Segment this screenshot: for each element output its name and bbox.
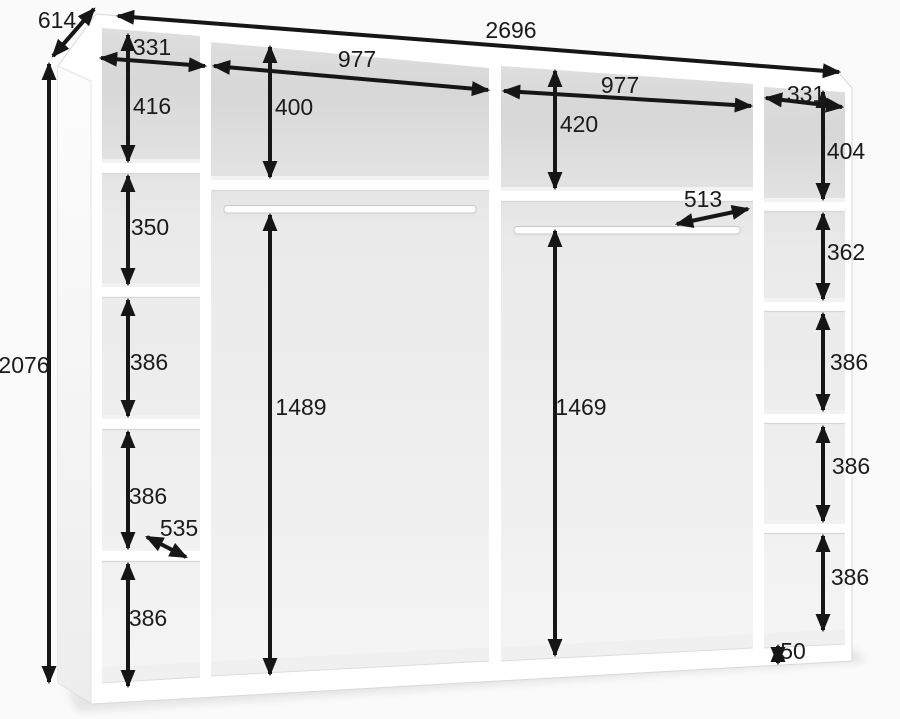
shelf: [764, 524, 845, 533]
dim-left-c1-label: 416: [133, 93, 171, 119]
rail-shadow: [514, 235, 740, 238]
shelf-top-surface: [102, 159, 200, 163]
left-side-panel: [58, 66, 91, 703]
dim-rail-depth-label: 513: [684, 186, 722, 212]
middle-left-interior: [211, 42, 489, 661]
dim-mid1-hang-label: 1489: [275, 394, 326, 420]
shelf: [764, 414, 845, 423]
dim-right-c3-label: 386: [830, 349, 868, 375]
shelf: [102, 419, 200, 429]
dim-right-c4-label: 386: [832, 453, 870, 479]
shelf: [211, 180, 489, 190]
dim-mid2-width-label: 977: [601, 72, 639, 98]
dim-left-shelf-depth-label: 535: [160, 515, 198, 541]
shelf: [102, 287, 200, 297]
wardrobe-dimension-diagram: 2696 614 2076 331 416 350 386 386 386 53…: [0, 0, 900, 719]
dim-left-col-width-label: 331: [133, 34, 171, 60]
shelf-top-surface: [102, 283, 200, 287]
dim-right-c1-label: 404: [827, 138, 866, 164]
dim-right-c2-label: 362: [827, 239, 865, 265]
shelf: [102, 163, 200, 173]
shelf-top-surface: [764, 410, 845, 414]
shelf-top-surface: [102, 547, 200, 551]
dim-mid1-top-label: 400: [275, 94, 313, 120]
shelf: [764, 302, 845, 311]
shelf: [764, 202, 845, 211]
shelf-top-surface: [102, 415, 200, 419]
dim-right-col-width-label: 331: [787, 81, 825, 107]
dim-left-c5-label: 386: [129, 605, 167, 631]
diagram-canvas: 2696 614 2076 331 416 350 386 386 386 53…: [0, 0, 900, 719]
dim-right-c5-label: 386: [831, 564, 869, 590]
dim-left-c2-label: 350: [131, 214, 169, 240]
dim-total-width-label: 2696: [485, 17, 536, 43]
dim-left-c3-label: 386: [130, 349, 168, 375]
middle-right-interior: [501, 66, 753, 647]
shelf-top-surface: [764, 298, 845, 302]
dim-total-depth-label: 614: [38, 7, 77, 33]
dim-mid1-width-label: 977: [338, 46, 376, 72]
dim-total-height-label: 2076: [0, 352, 50, 378]
dim-mid2-top-label: 420: [560, 111, 598, 137]
shelf-top-surface: [764, 520, 845, 524]
dim-mid2-hang-label: 1469: [555, 394, 606, 420]
dim-plinth-label: 50: [780, 638, 806, 664]
dim-left-c4-label: 386: [129, 483, 167, 509]
rail-shadow: [224, 214, 476, 217]
hanging-rail: [224, 206, 476, 214]
shelf-top-surface: [764, 198, 845, 202]
hanging-rail: [514, 227, 740, 235]
shelf-top-surface: [211, 176, 489, 180]
left-column-interior: [102, 28, 200, 667]
